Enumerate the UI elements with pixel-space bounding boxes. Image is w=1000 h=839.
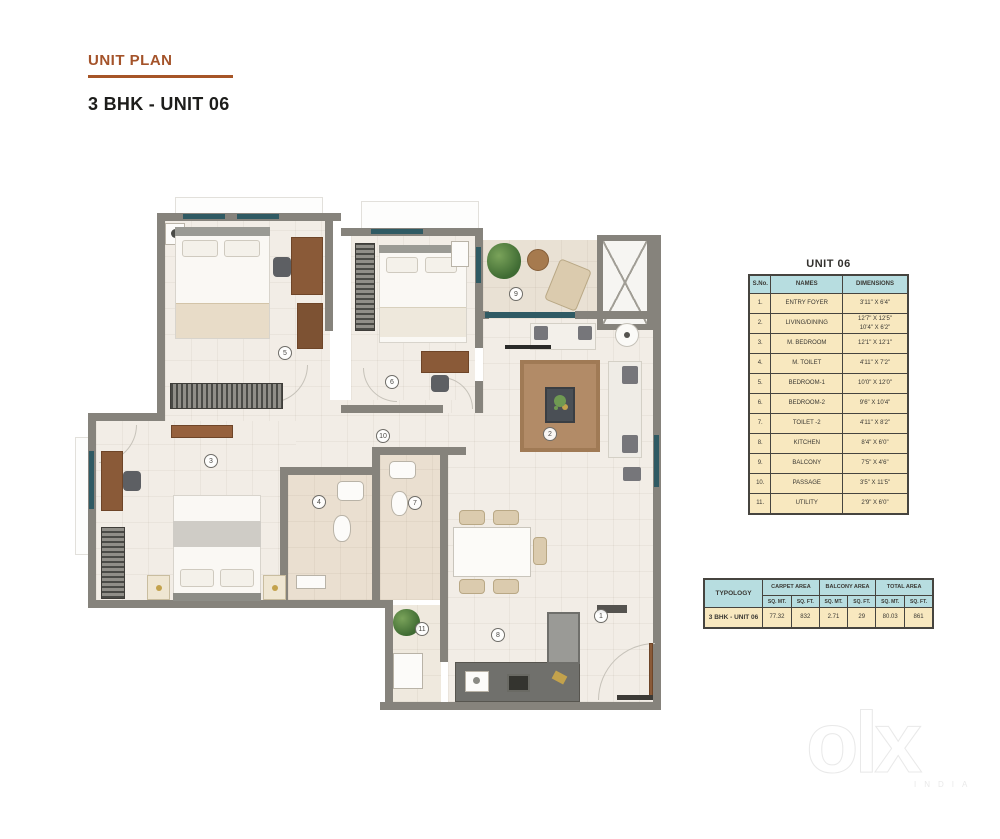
balcony-sqft: 29	[848, 608, 876, 629]
window-mbedroom	[89, 451, 94, 509]
wall-bedroom1-right	[325, 213, 333, 331]
carpet-sqft: 832	[791, 608, 819, 629]
bedroom1-pillow-b	[224, 240, 260, 257]
marker-entry-foyer: 1	[594, 609, 608, 623]
passage-console	[171, 425, 233, 438]
col-header-dimensions: DIMENSIONS	[843, 275, 908, 294]
cell-dim: 3'11" X 6'4"	[843, 294, 908, 314]
toilet2-wc	[391, 491, 408, 516]
dining-chair-1	[459, 510, 485, 525]
dim-line1: 12'1" X 12'1"	[858, 340, 892, 346]
sofa-pillow-a	[622, 366, 638, 384]
entry-door-leaf	[649, 643, 653, 700]
wall-balcony-bottom	[575, 311, 653, 319]
living-stool	[623, 467, 641, 481]
total-area-header: TOTAL AREA	[876, 579, 933, 596]
kitchen-hob	[507, 674, 530, 692]
dining-chair-4	[493, 579, 519, 594]
table-row: 8. KITCHEN 8'4" X 6'0"	[749, 434, 908, 454]
cell-name: LIVING/DINING	[771, 314, 843, 334]
sheet-header: UNIT PLAN 3 BHK - UNIT 06	[88, 52, 233, 115]
tv-unit	[505, 345, 551, 349]
ledge-top-bedroom1	[175, 197, 323, 214]
total-sqft: 861	[905, 608, 933, 629]
typology-value: 3 BHK - UNIT 06	[704, 608, 763, 629]
marker-bedroom-1: 5	[278, 346, 292, 360]
cell-dim: 8'4" X 6'0"	[843, 434, 908, 454]
table-row: 10. PASSAGE 3'5" X 11'5"	[749, 474, 908, 494]
coffee-table-flowers	[554, 395, 566, 407]
table-row: 11. UTILITY 2'9" X 6'0"	[749, 494, 908, 515]
wall-mbedroom-bottom	[88, 600, 385, 608]
table-row: 2. LIVING/DINING 12'7" X 12'5"10'4" X 6'…	[749, 314, 908, 334]
olx-india-label: INDIA	[914, 780, 996, 789]
floor-plan: 1 2 3 4 5 6 7 8 9 10 11	[75, 185, 670, 715]
col-header-names: NAMES	[771, 275, 843, 294]
marker-toilet-2: 7	[408, 496, 422, 510]
wall-toilet2-top	[372, 447, 466, 455]
marker-passage: 10	[376, 429, 390, 443]
bedroom2-wardrobe	[355, 243, 375, 331]
bedroom1-blanket	[176, 303, 269, 338]
dim-line1: 12'7" X 12'5"	[858, 316, 892, 322]
mbedroom-headboard	[173, 593, 261, 601]
unit-header: SQ. FT.	[905, 596, 933, 608]
window-living	[654, 435, 659, 487]
bedroom2-shelf	[451, 241, 469, 267]
cell-dim: 9'6" X 10'4"	[843, 394, 908, 414]
table-row: 9. BALCONY 7'5" X 4'6"	[749, 454, 908, 474]
kitchen-tall-unit	[547, 612, 580, 664]
mbedroom-desk	[101, 451, 123, 511]
cell-sno: 4.	[749, 354, 771, 374]
cell-name: BEDROOM-1	[771, 374, 843, 394]
loveseat-pillow-b	[578, 326, 592, 340]
cell-sno: 5.	[749, 374, 771, 394]
table-row: 3. M. BEDROOM 12'1" X 12'1"	[749, 334, 908, 354]
sofa-pillow-b	[622, 435, 638, 453]
unit-header: SQ. MT.	[819, 596, 848, 608]
unit-header: SQ. MT.	[763, 596, 792, 608]
cell-sno: 7.	[749, 414, 771, 434]
cell-name: PASSAGE	[771, 474, 843, 494]
utility-washer	[393, 653, 423, 689]
accent-rule	[88, 75, 233, 78]
toilet2-basin	[389, 461, 416, 479]
dim-line1: 9'6" X 10'4"	[860, 400, 891, 406]
olx-watermark: olx INDIA	[806, 700, 996, 789]
window-bedroom1-b	[237, 214, 279, 219]
dim-line1: 4'11" X 8'2"	[860, 420, 890, 426]
mbedroom-blanket-band	[173, 521, 261, 547]
carpet-area-header: CARPET AREA	[763, 579, 820, 596]
table-row: 6. BEDROOM-2 9'6" X 10'4"	[749, 394, 908, 414]
ledge-left-mbedroom	[75, 437, 89, 555]
bedroom1-wardrobe	[170, 383, 283, 409]
dining-chair-2	[493, 510, 519, 525]
mbedroom-wardrobe	[101, 527, 125, 599]
wall-bedroom2-right-post	[475, 381, 483, 413]
dim-line1: 3'5" X 11'5"	[860, 480, 890, 486]
cell-name: M. TOILET	[771, 354, 843, 374]
mtoilet-shower-tray	[296, 575, 326, 589]
cell-dim: 12'7" X 12'5"10'4" X 6'2"	[843, 314, 908, 334]
col-header-sno: S.No.	[749, 275, 771, 294]
mbedroom-chair	[123, 471, 141, 491]
cell-name: KITCHEN	[771, 434, 843, 454]
wall-utility-right	[440, 600, 448, 662]
cell-name: M. BEDROOM	[771, 334, 843, 354]
listing-image: { "header": { "eyebrow": "UNIT PLAN", "t…	[0, 0, 1000, 839]
wall-step	[88, 413, 165, 421]
mtoilet-wc	[333, 515, 351, 542]
cell-name: TOILET -2	[771, 414, 843, 434]
entry-doormat	[617, 695, 653, 700]
unit-header: SQ. MT.	[876, 596, 905, 608]
dim-line2: 10'4" X 6'2"	[860, 325, 891, 331]
bedroom1-chair	[273, 257, 291, 277]
cell-name: BEDROOM-2	[771, 394, 843, 414]
cell-dim: 7'5" X 4'6"	[843, 454, 908, 474]
marker-living-dining: 2	[543, 427, 557, 441]
balcony-slider-door	[485, 312, 575, 318]
dim-line1: 3'11" X 6'4"	[860, 300, 890, 306]
bedroom2-desk	[421, 351, 469, 373]
cell-name: ENTRY FOYER	[771, 294, 843, 314]
cell-sno: 11.	[749, 494, 771, 515]
unit-header: SQ. FT.	[848, 596, 876, 608]
total-sqmt: 80.03	[876, 608, 905, 629]
wall-mtoilet-top	[280, 467, 380, 475]
dining-table	[453, 527, 531, 577]
wall-toilet-divider	[372, 447, 380, 608]
ledge-top-bedroom2	[361, 201, 479, 229]
olx-logo: olx	[806, 700, 996, 786]
cell-dim: 2'9" X 6'0"	[843, 494, 908, 515]
mbedroom-nightstand-b	[263, 575, 286, 600]
bedroom2-blanket	[380, 307, 466, 337]
kitchen-sink-drain	[473, 677, 480, 684]
unit-table-title: UNIT 06	[748, 258, 909, 270]
balcony-area-header: BALCONY AREA	[819, 579, 876, 596]
dim-line1: 8'4" X 6'0"	[861, 440, 888, 446]
unit-dimensions-table: S.No. NAMES DIMENSIONS 1. ENTRY FOYER 3'…	[748, 274, 909, 515]
cell-sno: 8.	[749, 434, 771, 454]
area-summary-table: TYPOLOGY CARPET AREA BALCONY AREA TOTAL …	[703, 578, 934, 629]
mbedroom-nightstand-a	[147, 575, 170, 600]
mbedroom-pillow-a	[180, 569, 214, 587]
window-bedroom1-a	[183, 214, 225, 219]
bedroom1-dresser	[297, 303, 323, 349]
cell-dim: 4'11" X 8'2"	[843, 414, 908, 434]
table-row: 7. TOILET -2 4'11" X 8'2"	[749, 414, 908, 434]
cell-sno: 1.	[749, 294, 771, 314]
bedroom1-desk	[291, 237, 323, 295]
dim-line1: 10'0" X 12'0"	[858, 380, 892, 386]
mtoilet-basin	[337, 481, 364, 501]
cell-name: BALCONY	[771, 454, 843, 474]
cell-dim: 3'5" X 11'5"	[843, 474, 908, 494]
wall-bedroom1-left	[157, 213, 165, 413]
wall-toilet2-right	[440, 447, 448, 608]
unit-plan-label: UNIT PLAN	[88, 52, 233, 69]
dining-chair-5	[533, 537, 547, 565]
marker-kitchen: 8	[491, 628, 505, 642]
dim-line1: 7'5" X 4'6"	[861, 460, 888, 466]
wall-utility-left	[385, 600, 393, 708]
wall-mbedroom-left	[88, 413, 96, 608]
table-row: 5. BEDROOM-1 10'0" X 12'0"	[749, 374, 908, 394]
cell-name: UTILITY	[771, 494, 843, 515]
table-row: 1. ENTRY FOYER 3'11" X 6'4"	[749, 294, 908, 314]
cell-sno: 6.	[749, 394, 771, 414]
cell-sno: 9.	[749, 454, 771, 474]
balcony-table	[527, 249, 549, 271]
mbedroom-pillow-b	[220, 569, 254, 587]
bedroom2-pillow-a	[386, 257, 418, 273]
dining-chair-3	[459, 579, 485, 594]
marker-m-toilet: 4	[312, 495, 326, 509]
typology-header: TYPOLOGY	[704, 579, 763, 608]
unit-header: SQ. FT.	[791, 596, 819, 608]
table-row: 4. M. TOILET 4'11" X 7'2"	[749, 354, 908, 374]
marker-balcony: 9	[509, 287, 523, 301]
carpet-sqmt: 77.32	[763, 608, 792, 629]
table-row: 3 BHK - UNIT 06 77.32 832 2.71 29 80.03 …	[704, 608, 933, 629]
balcony-sqmt: 2.71	[819, 608, 848, 629]
washing-machine-dial	[624, 332, 630, 338]
marker-bedroom-2: 6	[385, 375, 399, 389]
dim-line1: 4'11" X 7'2"	[860, 360, 890, 366]
wall-bedroom2-bottom	[341, 405, 443, 413]
marker-m-bedroom: 3	[204, 454, 218, 468]
marker-utility: 11	[415, 622, 429, 636]
balcony-plant	[487, 243, 521, 279]
cell-dim: 4'11" X 7'2"	[843, 354, 908, 374]
cell-sno: 10.	[749, 474, 771, 494]
bedroom1-headboard	[175, 227, 270, 236]
window-bedroom2-side	[476, 247, 481, 283]
area-table-section: TYPOLOGY CARPET AREA BALCONY AREA TOTAL …	[703, 578, 934, 629]
bedroom1-pillow-a	[182, 240, 218, 257]
unit-table-section: UNIT 06 S.No. NAMES DIMENSIONS 1. ENTRY …	[748, 258, 909, 515]
cell-sno: 2.	[749, 314, 771, 334]
bedroom2-chair	[431, 375, 449, 392]
wall-bottom-exterior	[380, 702, 661, 710]
loveseat-pillow-a	[534, 326, 548, 340]
cell-dim: 12'1" X 12'1"	[843, 334, 908, 354]
cell-dim: 10'0" X 12'0"	[843, 374, 908, 394]
page-title: 3 BHK - UNIT 06	[88, 94, 233, 115]
cell-sno: 3.	[749, 334, 771, 354]
window-bedroom2	[371, 229, 423, 234]
dim-line1: 2'9" X 6'0"	[861, 500, 888, 506]
